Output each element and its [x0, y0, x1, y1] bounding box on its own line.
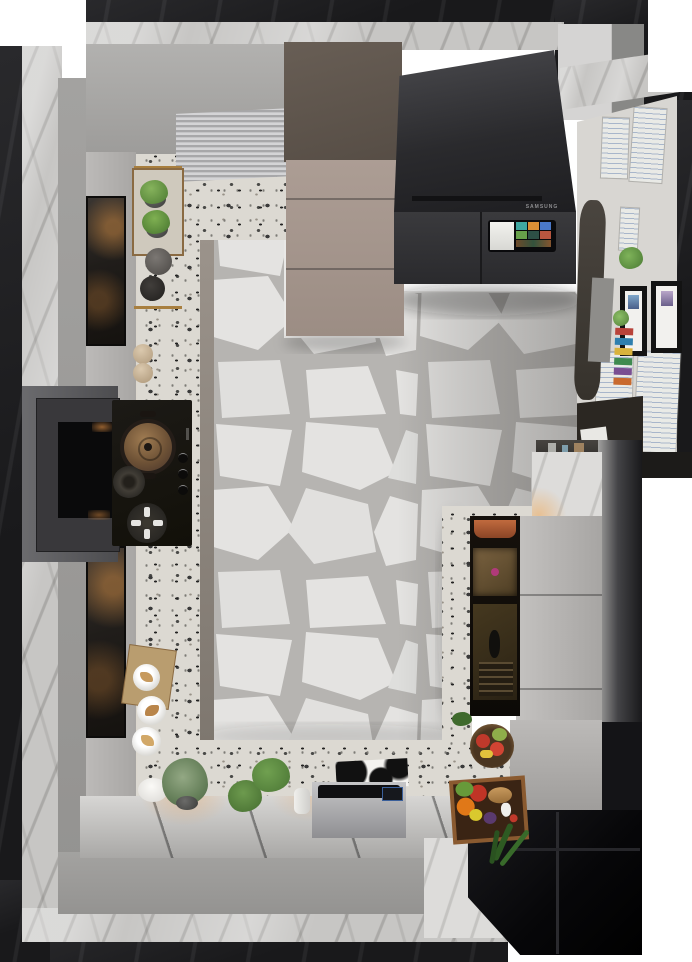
book-spine [613, 378, 631, 386]
storage-canister [133, 344, 153, 364]
app-tile [540, 231, 551, 239]
background-cutout-tl [0, 0, 86, 46]
fridge-door-seam [480, 212, 482, 284]
door-mullion [556, 812, 559, 954]
burner-cross [144, 529, 150, 539]
pot-lid-knob [144, 443, 152, 451]
pastry [141, 735, 154, 746]
brass-rail [134, 306, 182, 309]
door-seam [516, 594, 602, 596]
potted-plant [252, 758, 290, 792]
terracotta-dish [474, 520, 516, 538]
brass-rail [134, 166, 182, 169]
radish-tip [509, 814, 518, 823]
app-tile [528, 222, 539, 230]
background-cutout-right [642, 478, 692, 962]
hood-glint [92, 422, 112, 432]
screen-app-tiles [516, 222, 554, 250]
paper-roll [294, 788, 310, 814]
appliance-display [382, 787, 403, 801]
frame-art [661, 291, 673, 306]
plate-with-pastry [133, 664, 160, 691]
herb-plant [140, 180, 168, 204]
pillar-warm-glow [532, 486, 566, 518]
herb-plant [142, 210, 170, 234]
frame-art [628, 295, 639, 309]
app-tile [528, 231, 539, 239]
cabinet-seam [286, 268, 404, 270]
cabinet-seam [286, 198, 404, 200]
burner-cross [144, 507, 150, 517]
cooktop-knob[interactable] [178, 485, 188, 495]
eggplant [483, 812, 497, 825]
bowl-greens [452, 712, 472, 726]
book-spine [615, 338, 633, 346]
book-spine [615, 328, 633, 336]
poster [601, 118, 629, 179]
pantry-niche [470, 516, 520, 716]
burner-low [127, 503, 167, 543]
picture-frame [651, 281, 682, 353]
burner-cross [131, 520, 141, 526]
copper-pot [124, 423, 172, 471]
glass-cabinet-door-upper [86, 196, 126, 346]
nook-plant [613, 310, 629, 326]
counter-peninsula-band [442, 506, 472, 746]
base-cabinet-fronts [80, 796, 470, 858]
book-spine [614, 358, 632, 366]
fruit-bowl [470, 724, 514, 768]
felt-panel [588, 277, 614, 362]
taupe-cabinet-front [286, 160, 404, 336]
storage-canister [133, 363, 153, 383]
plate-with-pastry [137, 696, 166, 725]
book-spine [614, 348, 632, 356]
bottle [489, 630, 500, 658]
vegetable-box[interactable] [453, 780, 525, 841]
tambour-appliance-garage [176, 108, 292, 182]
poster [619, 208, 639, 251]
app-tile [540, 222, 551, 230]
burner-cross [153, 520, 163, 526]
corn [480, 750, 493, 758]
fridge-brand-logo: SAMSUNG [512, 204, 572, 210]
app-tile [516, 231, 527, 239]
door-rail [512, 848, 640, 851]
marble-pillar [532, 452, 602, 518]
cabinet-side-panel-br [510, 720, 602, 814]
book-stack [613, 328, 634, 405]
hood-core [58, 422, 114, 518]
pastry [145, 705, 159, 716]
cooktop-logo-strip [186, 428, 189, 440]
lettuce [492, 728, 507, 741]
hood-glint [88, 510, 110, 520]
dark-panel-br [602, 722, 642, 814]
kitchen-render: SAMSUNG [0, 0, 692, 962]
range-hood [22, 386, 118, 562]
kettle [140, 276, 165, 301]
app-tile [516, 222, 527, 230]
burner-mid [113, 466, 145, 498]
tomato [476, 734, 490, 748]
burner-cap [142, 518, 152, 528]
coffee-grinder [145, 248, 172, 275]
fridge-touchscreen[interactable] [488, 220, 556, 252]
plant-pot [176, 796, 198, 810]
fridge-front: SAMSUNG [394, 212, 576, 284]
bronze-shelf [473, 604, 517, 700]
pot-handle [140, 411, 156, 417]
nook-plant [619, 247, 643, 269]
screen-photo-strip [516, 240, 551, 247]
fridge-top [394, 50, 576, 212]
poster [629, 107, 666, 183]
pastry [140, 672, 153, 682]
book-spine [614, 368, 632, 376]
small-appliance [479, 662, 513, 696]
bronze-drawer [473, 548, 517, 596]
taupe-cabinet-top [284, 42, 402, 162]
cooktop-knob[interactable] [178, 469, 188, 479]
cooktop-knob[interactable] [178, 453, 188, 463]
plate-with-pastry [132, 727, 161, 756]
door-seam [516, 688, 602, 690]
screen-calendar-panel [490, 222, 514, 250]
background-cutout-br [508, 956, 692, 962]
lemon [469, 808, 483, 821]
fridge-handle-groove [412, 196, 542, 201]
glass-cabinet-door-lower [86, 546, 126, 738]
background-cutout-tr [648, 0, 692, 92]
bread-loaf [487, 786, 512, 804]
base-cabinet-side-panel [198, 237, 214, 742]
fridge-floor-shadow [392, 284, 582, 316]
drawer-knob[interactable] [491, 568, 499, 576]
steel-appliance [312, 782, 406, 838]
